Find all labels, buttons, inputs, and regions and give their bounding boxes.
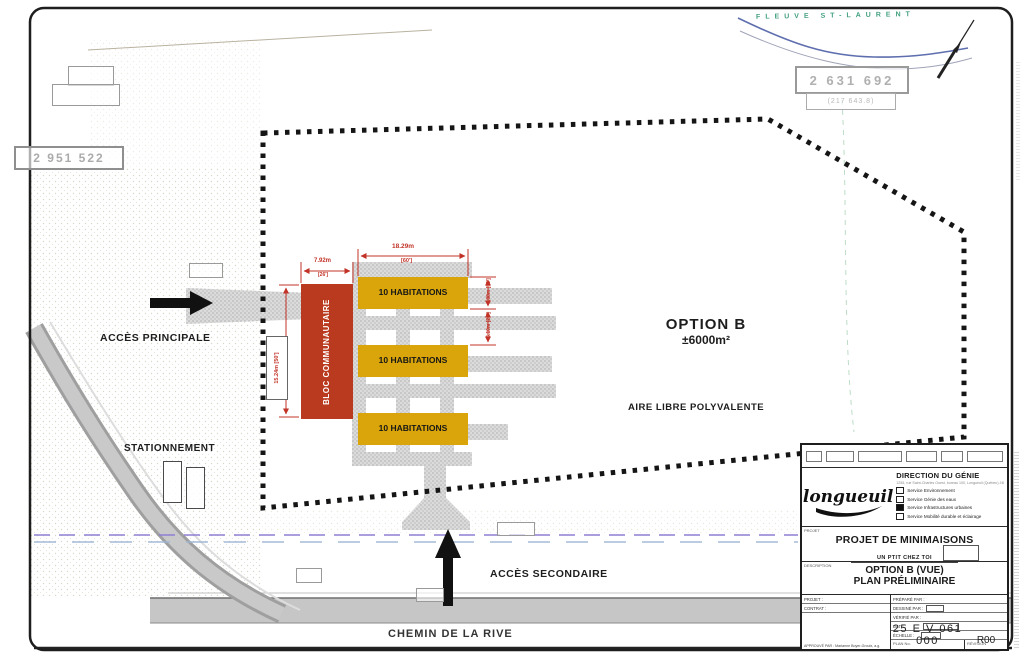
- dim-hab-gap: 6.10m [20']: [486, 312, 492, 338]
- reference-box: [296, 568, 322, 583]
- site-plan-sheet: FLEUVE ST-LAURENT 2 951 522 2 631 692 (2…: [0, 0, 1024, 658]
- contour-line: [842, 100, 854, 432]
- dim-bloc-width-ft: [26']: [318, 272, 328, 278]
- walkway-stub-3: [468, 424, 508, 440]
- dim-bloc-width: 7.92m: [314, 258, 331, 264]
- title-block-header-strip: [802, 445, 1007, 468]
- plot-stamp-text: [1016, 60, 1020, 180]
- dim-bloc-height: 15.24m [50']: [274, 352, 280, 383]
- option-title: OPTION B: [648, 316, 764, 333]
- strip-cell: [858, 451, 902, 462]
- dim-row-width: 18.29m: [392, 243, 414, 250]
- dim-hab-depth: 4.88m [16']: [486, 278, 492, 304]
- lot-number-west: 2 951 522: [14, 146, 124, 170]
- lot-area-northeast: (217 643.8): [806, 93, 896, 110]
- habitation-block-1-label: 10 HABITATIONS: [373, 287, 453, 298]
- logo-swoosh-icon: [814, 504, 884, 518]
- strip-cell: [967, 451, 1003, 462]
- reference-box: [52, 84, 120, 106]
- service-item: Service Environnement: [896, 487, 1004, 494]
- walkway-stub-2: [468, 356, 552, 372]
- strip-cell: [806, 451, 822, 462]
- checkbox-icon: [896, 496, 904, 503]
- department-title: DIRECTION DU GÉNIE: [896, 471, 1004, 480]
- plan-number-value: 25 E V 061 000: [891, 623, 964, 647]
- parking-stall: [163, 461, 182, 503]
- access-secondary-label: ACCÈS SECONDAIRE: [490, 568, 608, 580]
- plan-number-cell: PLAN No. 25 E V 061 000: [891, 640, 965, 649]
- habitation-block-3-label: 10 HABITATIONS: [373, 423, 453, 434]
- river-secondary-line: [740, 31, 972, 69]
- drawn-by-box: [926, 605, 944, 612]
- projet-field-label: PROJET :: [802, 595, 890, 604]
- checkbox-icon: [896, 487, 904, 494]
- habitation-block-2: 10 HABITATIONS: [358, 345, 468, 377]
- description-section-label: DESCRIPTION: [804, 563, 831, 568]
- checked-by-label: VÉRIFIÉ PAR :: [893, 615, 921, 620]
- revision-value: R00: [965, 635, 1007, 646]
- walkway-stub-1: [468, 288, 552, 304]
- river-shoreline: [738, 18, 968, 57]
- lot-number-west-text: 2 951 522: [33, 151, 104, 165]
- title-block: longueuil DIRECTION DU GÉNIE 1255, rue S…: [800, 443, 1009, 651]
- drawn-by-label: DESSINÉ PAR :: [893, 606, 923, 611]
- description-line1: OPTION B (VUE): [802, 565, 1007, 576]
- reference-box: [416, 588, 444, 602]
- dim-bloc-height-box: 15.24m [50']: [266, 336, 288, 400]
- habitation-block-3: 10 HABITATIONS: [358, 413, 468, 445]
- contrat-field-label: CONTRAT :: [802, 604, 890, 613]
- service-label: Service Environnement: [907, 488, 955, 493]
- project-section: PROJET PROJET DE MINIMAISONS UN PTIT CHE…: [802, 527, 1007, 562]
- open-area-label: AIRE LIBRE POLYVALENTE: [628, 402, 764, 413]
- north-arrow-icon: [938, 20, 974, 78]
- walkway-secondary: [402, 466, 470, 530]
- service-item: Service Génie des eaux: [896, 496, 1004, 503]
- service-item: Service Mobilité durable et éclairage: [896, 513, 1004, 520]
- checkbox-icon: [896, 513, 904, 520]
- longueuil-logo: longueuil: [802, 468, 894, 526]
- habitation-block-1: 10 HABITATIONS: [358, 277, 468, 309]
- reference-box: [68, 66, 114, 86]
- prepared-by-label: PRÉPARÉ PAR :: [893, 597, 925, 602]
- project-section-label: PROJET: [804, 528, 820, 533]
- service-item: Service Infrastructures urbaines: [896, 504, 1004, 511]
- habitation-block-2-label: 10 HABITATIONS: [373, 355, 453, 366]
- approved-by: APPROUVÉ PAR : Marianne Boyer-Groulx, a.…: [802, 643, 890, 649]
- department-address: 1255, rue Saint-Charles Ouest, bureau 10…: [896, 481, 1004, 485]
- option-area: ±6000m²: [648, 333, 764, 347]
- service-label: Service Génie des eaux: [907, 497, 956, 502]
- access-principal-label: ACCÈS PRINCIPALE: [100, 332, 210, 344]
- parking-stall: [186, 467, 205, 509]
- lot-number-northeast-text: 2 631 692: [810, 73, 895, 88]
- strip-cell: [941, 451, 963, 462]
- service-label: Service Infrastructures urbaines: [907, 505, 972, 510]
- description-section: DESCRIPTION OPTION B (VUE) PLAN PRÉLIMIN…: [802, 562, 1007, 595]
- plot-stamp-text: [1014, 452, 1019, 648]
- revision-cell: RÉVISION R00: [965, 640, 1007, 649]
- checkbox-icon: [896, 504, 904, 511]
- service-label: Service Mobilité durable et éclairage: [907, 514, 981, 519]
- strip-cell: [906, 451, 938, 462]
- road-label: CHEMIN DE LA RIVE: [388, 628, 513, 640]
- lot-area-northeast-text: (217 643.8): [828, 98, 875, 105]
- reference-box: [497, 522, 535, 536]
- community-block-label: BLOC COMMUNAUTAIRE: [321, 289, 333, 415]
- revision-cloud-box: [943, 545, 979, 561]
- parking-label: STATIONNEMENT: [124, 443, 215, 454]
- community-block: BLOC COMMUNAUTAIRE: [301, 284, 353, 419]
- option-annotation: OPTION B ±6000m²: [648, 316, 764, 347]
- reference-box: [189, 263, 223, 278]
- strip-cell: [826, 451, 854, 462]
- dim-row-width-ft: [60']: [401, 258, 412, 264]
- description-line2: PLAN PRÉLIMINAIRE: [802, 576, 1007, 587]
- lot-number-northeast: 2 631 692: [795, 66, 909, 94]
